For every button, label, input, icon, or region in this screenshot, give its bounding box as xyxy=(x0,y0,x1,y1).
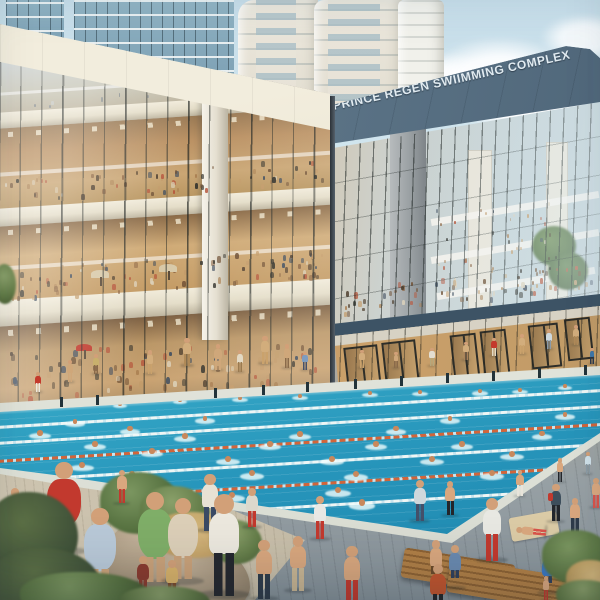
person-head xyxy=(394,352,397,355)
person-legs xyxy=(492,348,496,356)
person-head xyxy=(516,527,522,533)
person-legs xyxy=(544,590,549,600)
person-legs xyxy=(430,358,434,366)
person-torso xyxy=(290,546,306,568)
person-legs xyxy=(574,336,578,344)
person-legs xyxy=(533,528,546,535)
person xyxy=(588,348,597,364)
person-legs xyxy=(447,501,454,516)
person-head xyxy=(593,478,599,484)
person-legs xyxy=(346,580,358,600)
person-legs xyxy=(590,357,593,364)
person xyxy=(565,498,585,534)
person-torso xyxy=(117,476,127,490)
person xyxy=(513,470,527,496)
person-torso xyxy=(445,487,455,501)
person xyxy=(588,478,600,508)
person-head xyxy=(416,480,424,488)
person xyxy=(489,338,499,356)
person xyxy=(64,360,76,382)
person-head xyxy=(520,334,524,338)
person-legs xyxy=(552,505,560,521)
person-torso xyxy=(314,504,326,522)
person-legs xyxy=(238,362,242,371)
person-legs xyxy=(547,340,551,348)
pool-complex-scene: PRINCE REGEN SWIIMMING COMPLEX xyxy=(0,0,600,600)
person xyxy=(280,344,293,368)
person-head xyxy=(91,508,108,525)
person xyxy=(91,354,102,374)
person-torso xyxy=(543,580,550,590)
person-head xyxy=(148,350,153,355)
person-head xyxy=(55,462,72,479)
person-head xyxy=(94,354,98,358)
person xyxy=(544,329,555,349)
person-torso xyxy=(166,567,177,583)
person-legs xyxy=(119,489,126,503)
person xyxy=(408,480,431,522)
person-head xyxy=(184,338,189,343)
deck-people-layer xyxy=(0,0,600,600)
person xyxy=(283,536,314,592)
person xyxy=(423,564,453,600)
person xyxy=(582,452,594,474)
person-torso xyxy=(592,483,600,495)
person xyxy=(571,325,582,345)
person-torso xyxy=(430,574,445,596)
person-legs xyxy=(464,352,468,360)
person-legs xyxy=(68,372,72,381)
person xyxy=(179,338,194,366)
person-torso xyxy=(516,475,523,485)
person-torso xyxy=(261,341,269,352)
person-head xyxy=(547,329,551,333)
person-torso xyxy=(214,349,221,359)
person-head xyxy=(346,546,357,557)
person-head xyxy=(432,540,441,549)
person-head xyxy=(316,496,324,504)
person-head xyxy=(204,474,215,485)
person xyxy=(308,496,332,540)
person-legs xyxy=(520,345,524,353)
person-legs xyxy=(285,358,290,368)
person-legs xyxy=(258,574,270,599)
person-lying xyxy=(515,521,547,541)
person-head xyxy=(258,540,269,551)
person-head xyxy=(552,484,559,491)
person-legs xyxy=(316,521,325,539)
person xyxy=(248,540,281,600)
person-legs xyxy=(360,360,364,368)
person-head xyxy=(293,536,304,547)
person-legs xyxy=(593,495,599,508)
person-head xyxy=(214,494,234,514)
person xyxy=(336,546,369,600)
person-head xyxy=(168,560,176,568)
person-head xyxy=(590,348,593,351)
person-legs xyxy=(36,383,40,391)
person-head xyxy=(574,325,578,329)
person-torso xyxy=(344,557,361,581)
person xyxy=(357,350,367,368)
person-legs xyxy=(94,365,98,373)
person xyxy=(427,348,437,366)
person xyxy=(211,344,225,370)
person-legs xyxy=(262,352,268,364)
person-head xyxy=(486,498,498,510)
person xyxy=(392,352,401,368)
person-torso xyxy=(414,488,426,505)
person-torso xyxy=(483,510,501,536)
person-legs xyxy=(586,464,590,473)
person xyxy=(234,350,246,372)
person xyxy=(257,336,272,364)
person-head xyxy=(175,498,191,514)
person-torso xyxy=(557,462,564,472)
person xyxy=(300,352,310,370)
person-legs xyxy=(517,485,522,496)
backpack xyxy=(548,493,553,501)
person xyxy=(539,576,552,600)
person-torso xyxy=(284,348,291,358)
person xyxy=(33,372,44,392)
person-legs xyxy=(215,359,220,370)
bush xyxy=(556,580,600,600)
person-legs xyxy=(486,534,499,561)
person-head xyxy=(451,545,459,553)
person-legs xyxy=(416,504,424,522)
person xyxy=(461,342,471,360)
person-head xyxy=(285,344,290,349)
person-torso xyxy=(209,513,238,555)
person-head xyxy=(544,576,549,581)
person-torso xyxy=(137,564,149,581)
person xyxy=(143,350,156,374)
person-head xyxy=(572,498,579,505)
person-torso xyxy=(570,504,580,518)
person xyxy=(517,334,528,354)
person-head xyxy=(433,564,443,574)
person-head xyxy=(36,372,40,376)
person-legs xyxy=(148,364,153,374)
person-legs xyxy=(184,354,190,366)
person-legs xyxy=(558,472,563,482)
person-torso xyxy=(183,343,191,354)
person xyxy=(546,484,567,522)
person-legs xyxy=(292,568,303,592)
person xyxy=(440,481,459,516)
person-torso xyxy=(168,514,199,559)
person-torso xyxy=(147,354,154,364)
person-legs xyxy=(394,361,397,368)
person-legs xyxy=(214,553,235,597)
person-head xyxy=(262,336,267,341)
person xyxy=(553,458,566,482)
person-head xyxy=(139,556,147,564)
person-head xyxy=(558,458,563,463)
person-head xyxy=(447,481,454,488)
person-legs xyxy=(303,362,307,370)
person xyxy=(474,498,509,562)
person-torso xyxy=(256,551,273,575)
person-legs xyxy=(433,594,444,600)
